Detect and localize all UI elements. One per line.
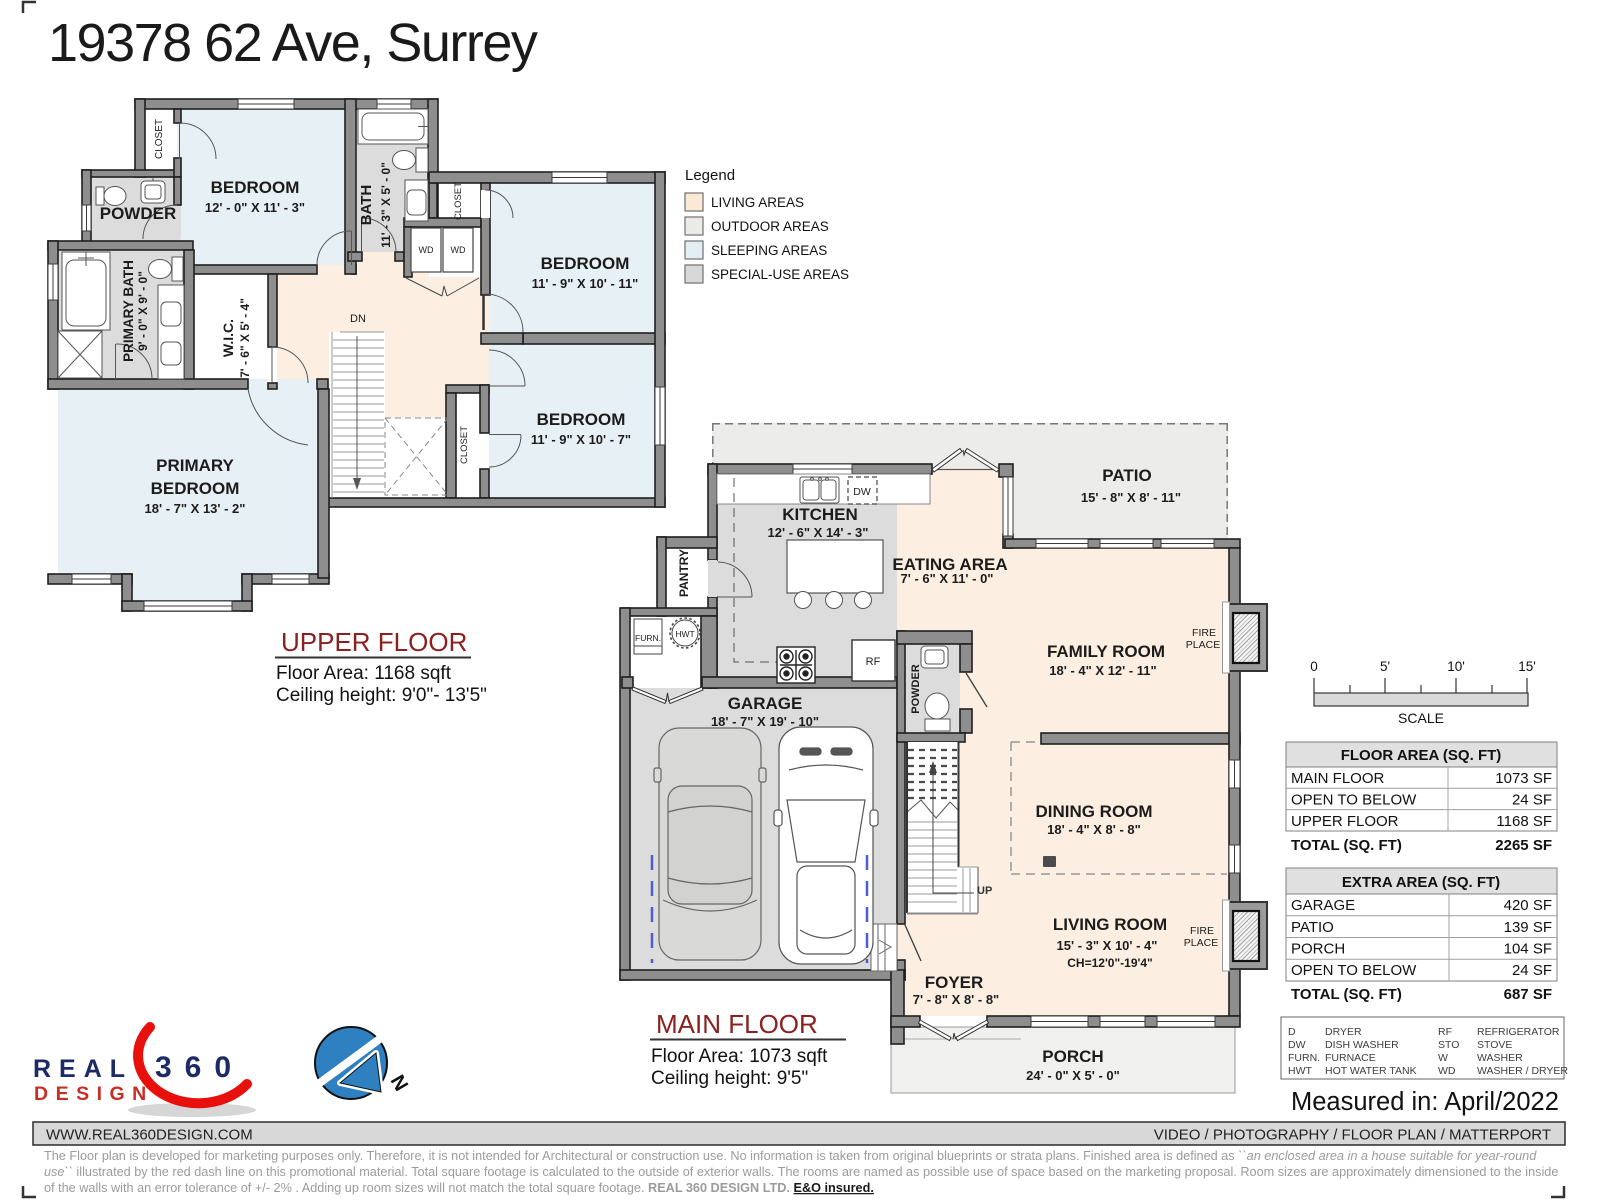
svg-text:BEDROOM: BEDROOM: [151, 479, 240, 498]
svg-text:12' - 6" X 14' - 3": 12' - 6" X 14' - 3": [768, 525, 869, 540]
svg-text:CLOSET: CLOSET: [154, 119, 165, 159]
svg-text:DESIGN: DESIGN: [34, 1083, 154, 1105]
svg-text:STOVE: STOVE: [1477, 1039, 1512, 1051]
svg-text:TOTAL (SQ. FT): TOTAL (SQ. FT): [1291, 986, 1402, 1003]
svg-text:WD: WD: [451, 245, 466, 255]
svg-text:BEDROOM: BEDROOM: [541, 254, 630, 273]
svg-text:OPEN TO BELOW: OPEN TO BELOW: [1291, 962, 1417, 979]
svg-text:BEDROOM: BEDROOM: [211, 178, 300, 197]
svg-text:7' - 6" X 11' - 0": 7' - 6" X 11' - 0": [901, 571, 994, 586]
svg-text:Measured in: April/2022: Measured in: April/2022: [1291, 1088, 1559, 1116]
svg-text:DW: DW: [853, 486, 871, 498]
svg-text:SCALE: SCALE: [1398, 710, 1444, 726]
svg-text:REFRIGERATOR: REFRIGERATOR: [1477, 1026, 1560, 1038]
svg-text:STO: STO: [1438, 1039, 1459, 1051]
svg-text:WASHER: WASHER: [1477, 1052, 1523, 1064]
svg-text:DW: DW: [1288, 1039, 1306, 1051]
svg-text:WD: WD: [419, 245, 434, 255]
svg-text:OPEN TO BELOW: OPEN TO BELOW: [1291, 792, 1417, 809]
svg-text:The Floor plan is developed fo: The Floor plan is developed for marketin…: [44, 1149, 1537, 1163]
svg-text:WWW.REAL360DESIGN.COM: WWW.REAL360DESIGN.COM: [46, 1127, 253, 1144]
svg-text:DN: DN: [350, 313, 366, 325]
svg-text:Floor Area: 1073 sqft: Floor Area: 1073 sqft: [651, 1046, 828, 1067]
svg-text:PORCH: PORCH: [1042, 1047, 1103, 1066]
svg-text:FAMILY ROOM: FAMILY ROOM: [1047, 642, 1165, 661]
svg-text:24 SF: 24 SF: [1512, 792, 1552, 809]
svg-text:Floor Area: 1168 sqft: Floor Area: 1168 sqft: [276, 663, 452, 684]
svg-text:15' - 3" X 10' - 4": 15' - 3" X 10' - 4": [1057, 938, 1158, 953]
svg-text:REAL: REAL: [33, 1055, 133, 1083]
svg-text:VIDEO / PHOTOGRAPHY / FLOOR PL: VIDEO / PHOTOGRAPHY / FLOOR PLAN / MATTE…: [1154, 1127, 1551, 1144]
svg-text:MAIN FLOOR: MAIN FLOOR: [656, 1009, 818, 1039]
svg-text:1168 SF: 1168 SF: [1496, 813, 1552, 830]
svg-text:GARAGE: GARAGE: [728, 694, 803, 713]
svg-text:FIRE: FIRE: [1192, 627, 1216, 639]
svg-text:GARAGE: GARAGE: [1291, 897, 1355, 914]
svg-text:687 SF: 687 SF: [1504, 986, 1552, 1003]
svg-text:5': 5': [1380, 659, 1390, 674]
svg-text:PANTRY: PANTRY: [677, 549, 691, 597]
svg-text:W.I.C.: W.I.C.: [220, 319, 236, 357]
svg-text:PATIO: PATIO: [1102, 466, 1151, 485]
svg-text:FLOOR AREA (SQ. FT): FLOOR AREA (SQ. FT): [1341, 747, 1502, 764]
svg-text:W: W: [1438, 1052, 1448, 1064]
svg-text:PRIMARY BATH: PRIMARY BATH: [121, 260, 136, 362]
svg-text:N: N: [386, 1072, 412, 1096]
svg-text:DRYER: DRYER: [1325, 1026, 1362, 1038]
svg-text:11' - 9" X 10' - 7": 11' - 9" X 10' - 7": [531, 432, 631, 447]
svg-text:SPECIAL-USE AREAS: SPECIAL-USE AREAS: [711, 267, 849, 282]
svg-text:OUTDOOR AREAS: OUTDOOR AREAS: [711, 219, 829, 234]
svg-text:19378 62 Ave, Surrey: 19378 62 Ave, Surrey: [48, 13, 538, 73]
svg-text:LIVING AREAS: LIVING AREAS: [711, 195, 804, 210]
svg-text:7' - 6" X 5' - 4": 7' - 6" X 5' - 4": [238, 298, 252, 378]
svg-text:15': 15': [1518, 659, 1536, 674]
svg-text:0: 0: [1310, 659, 1318, 674]
svg-text:24 SF: 24 SF: [1512, 962, 1552, 979]
svg-text:Ceiling height: 9'0"- 13'5": Ceiling height: 9'0"- 13'5": [276, 685, 487, 706]
svg-text:use`` illustrated by the red d: use`` illustrated by the red dash line o…: [44, 1165, 1558, 1179]
svg-text:FOYER: FOYER: [925, 973, 984, 992]
svg-text:2265 SF: 2265 SF: [1495, 837, 1552, 854]
svg-text:420 SF: 420 SF: [1504, 897, 1552, 914]
svg-text:Legend: Legend: [685, 167, 735, 184]
svg-text:D: D: [1288, 1026, 1296, 1038]
svg-text:UPPER FLOOR: UPPER FLOOR: [1291, 813, 1399, 830]
svg-text:15' - 8" X 8' - 11": 15' - 8" X 8' - 11": [1081, 490, 1181, 505]
svg-text:PLACE: PLACE: [1184, 937, 1218, 949]
svg-text:PORCH: PORCH: [1291, 941, 1345, 958]
svg-text:TOTAL (SQ. FT): TOTAL (SQ. FT): [1291, 837, 1402, 854]
svg-text:CLOSET: CLOSET: [453, 182, 464, 220]
svg-text:18' - 4" X 8' - 8": 18' - 4" X 8' - 8": [1047, 822, 1141, 837]
svg-text:of the walls with an error tol: of the walls with an error tolerance of …: [44, 1181, 874, 1195]
svg-text:WASHER / DRYER: WASHER / DRYER: [1477, 1065, 1568, 1077]
svg-text:1073 SF: 1073 SF: [1495, 770, 1552, 787]
svg-text:UP: UP: [977, 885, 992, 897]
svg-text:PLACE: PLACE: [1186, 639, 1220, 651]
svg-text:BEDROOM: BEDROOM: [537, 410, 626, 429]
svg-text:CH=12'0"-19'4": CH=12'0"-19'4": [1067, 956, 1152, 970]
svg-text:KITCHEN: KITCHEN: [782, 505, 858, 524]
svg-text:BATH: BATH: [358, 185, 375, 226]
svg-text:139 SF: 139 SF: [1504, 919, 1552, 936]
svg-text:FIRE: FIRE: [1190, 925, 1214, 937]
svg-text:RF: RF: [1438, 1026, 1452, 1038]
svg-text:WD: WD: [1438, 1065, 1456, 1077]
svg-text:MAIN FLOOR: MAIN FLOOR: [1291, 770, 1385, 787]
svg-text:HWT: HWT: [675, 629, 694, 639]
svg-text:18' - 7" X 19' - 10": 18' - 7" X 19' - 10": [711, 714, 819, 729]
svg-text:DISH WASHER: DISH WASHER: [1325, 1039, 1399, 1051]
svg-text:EXTRA AREA (SQ. FT): EXTRA AREA (SQ. FT): [1342, 874, 1500, 891]
svg-text:CLOSET: CLOSET: [459, 426, 470, 464]
svg-text:11' - 9" X 10' - 11": 11' - 9" X 10' - 11": [532, 276, 639, 291]
svg-text:24' - 0" X 5' - 0": 24' - 0" X 5' - 0": [1026, 1068, 1120, 1083]
svg-text:PATIO: PATIO: [1291, 919, 1334, 936]
svg-text:SLEEPING AREAS: SLEEPING AREAS: [711, 243, 827, 258]
svg-text:10': 10': [1447, 659, 1465, 674]
svg-text:360: 360: [155, 1051, 244, 1084]
svg-text:7' - 8" X 8' - 8": 7' - 8" X 8' - 8": [913, 992, 999, 1007]
svg-text:HOT WATER TANK: HOT WATER TANK: [1325, 1065, 1417, 1077]
svg-text:DINING ROOM: DINING ROOM: [1035, 802, 1152, 821]
svg-text:FURN.: FURN.: [1288, 1052, 1320, 1064]
svg-text:104 SF: 104 SF: [1504, 941, 1552, 958]
svg-text:HWT: HWT: [1288, 1065, 1312, 1077]
svg-text:18' - 7" X 13' - 2": 18' - 7" X 13' - 2": [145, 501, 246, 516]
svg-text:UPPER FLOOR: UPPER FLOOR: [281, 627, 467, 657]
svg-text:12' - 0" X 11' - 3": 12' - 0" X 11' - 3": [205, 200, 305, 215]
svg-text:FURN.: FURN.: [635, 633, 661, 643]
svg-text:FURNACE: FURNACE: [1325, 1052, 1376, 1064]
svg-text:18' - 4" X 12' - 11": 18' - 4" X 12' - 11": [1049, 663, 1156, 678]
svg-text:9' - 0" X 9' - 0": 9' - 0" X 9' - 0": [136, 271, 150, 351]
svg-text:POWDER: POWDER: [100, 204, 177, 223]
svg-text:POWDER: POWDER: [910, 664, 922, 714]
svg-text:RF: RF: [866, 656, 881, 668]
svg-text:PRIMARY: PRIMARY: [156, 456, 234, 475]
svg-text:Ceiling height: 9'5": Ceiling height: 9'5": [651, 1068, 808, 1089]
svg-text:LIVING ROOM: LIVING ROOM: [1053, 915, 1167, 934]
svg-text:11' - 3" X 5' - 0": 11' - 3" X 5' - 0": [379, 162, 393, 248]
